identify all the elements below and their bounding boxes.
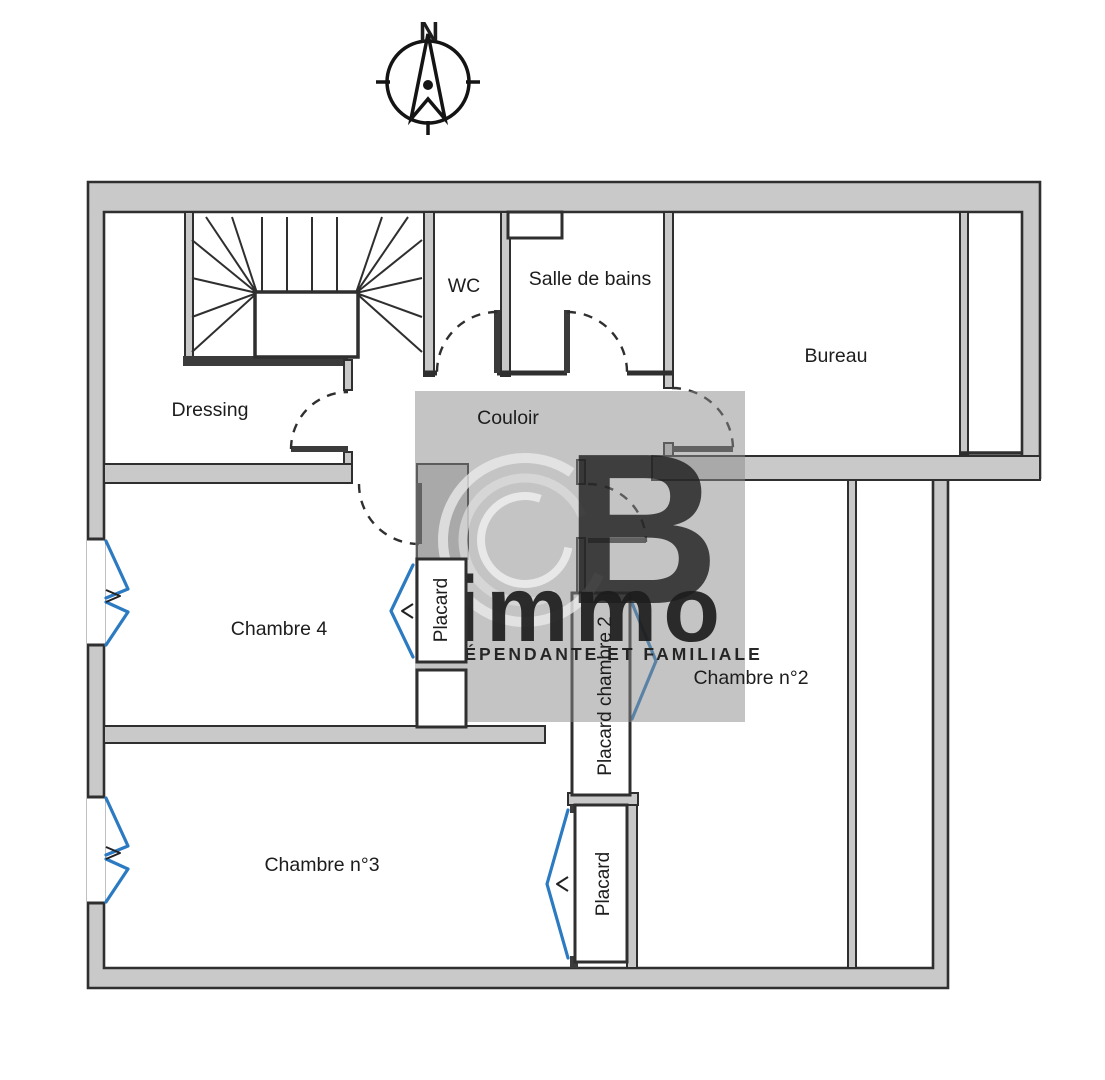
compass-icon: N [376, 16, 480, 135]
placard-chambre4-lower-box [417, 670, 466, 727]
placard-chambre2-label: Placard chambre 2 [595, 616, 616, 775]
chambre3-window-opening [87, 797, 105, 903]
chambre4-chambre3-wall [104, 726, 545, 743]
wc-left-wall [424, 212, 434, 376]
dressing-door-stub-top [344, 360, 352, 390]
dressing-chambre4-wall [104, 464, 352, 483]
compass-center-dot [423, 80, 433, 90]
chambre2-label: Chambre n°2 [693, 667, 808, 689]
floor-plan-svg: B immo INDÉPENDANTE ET FAMILIALE Dressin… [0, 0, 1105, 1080]
stair-landing [255, 292, 358, 357]
dressing-door-arc [291, 392, 348, 449]
floor-plan-page: B immo INDÉPENDANTE ET FAMILIALE Dressin… [0, 0, 1105, 1080]
chambre3-label: Chambre n°3 [264, 854, 379, 876]
bureau-label: Bureau [805, 345, 868, 367]
placard-chambre4-label: Placard [431, 578, 452, 642]
placard-chambre4-door-arrow-icon [402, 604, 413, 618]
dressing-door-leaf [291, 446, 348, 452]
chambre4-door-arc [359, 484, 420, 544]
placard-chambre3-door-arrow-icon [557, 877, 568, 891]
logo-tagline: INDÉPENDANTE ET FAMILIALE [425, 643, 763, 664]
chambre3-window-icon [106, 798, 128, 902]
staircase [192, 217, 422, 357]
wc-door-leaf [494, 310, 500, 373]
placard-chambre3-label: Placard [593, 852, 614, 916]
north-label: N [419, 16, 439, 47]
bathroom-duct-notch [508, 212, 562, 238]
salle-de-bains-label: Salle de bains [529, 268, 652, 290]
couloir-label: Couloir [477, 407, 539, 429]
wc-door-arc [437, 312, 497, 372]
chambre4-label: Chambre 4 [231, 618, 328, 640]
stair-left-wall [185, 212, 193, 364]
chambre4-window-opening [87, 539, 105, 645]
dressing-label: Dressing [172, 399, 249, 421]
chambre4-window-icon [106, 541, 128, 645]
bathroom-bureau-wall [664, 212, 673, 388]
wc-label: WC [448, 275, 481, 297]
chambre2-strip-wall [848, 480, 856, 968]
bathroom-door-arc [567, 312, 627, 372]
bureau-strip-wall [960, 212, 968, 455]
bathroom-door-leaf [564, 310, 570, 373]
